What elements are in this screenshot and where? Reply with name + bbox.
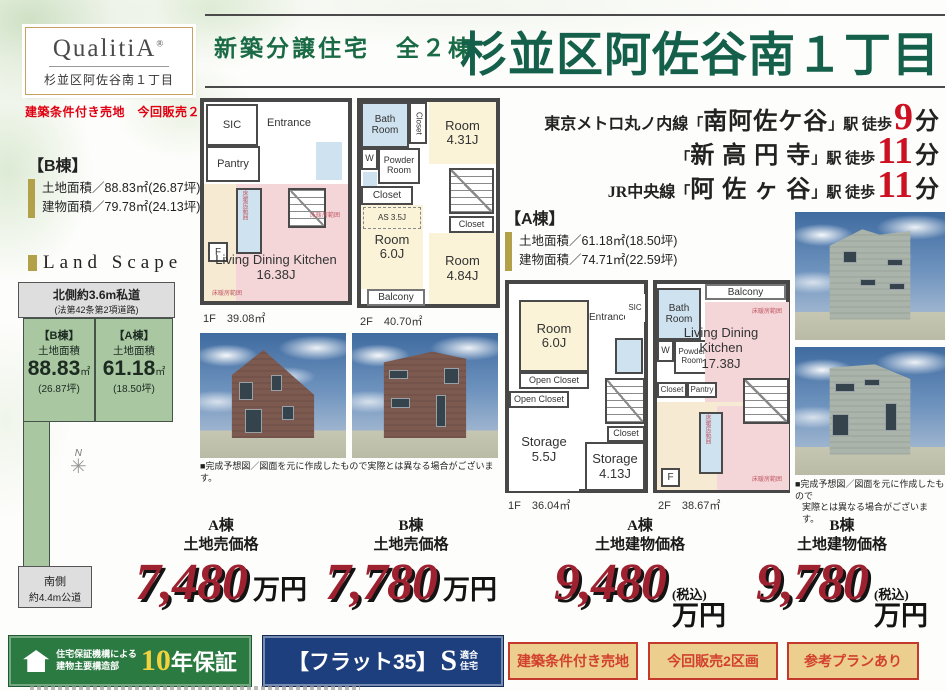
pantry: Pantry (687, 382, 717, 398)
price-b-total: B棟土地建物価格 9,780 (税込)万円 (742, 517, 942, 630)
floorplan-b-2f: Bath Room Closet Room 4.31J W Powder Roo… (357, 98, 500, 308)
ldk-label: Living Dining Kitchen 16.38J (204, 252, 348, 282)
plot-b-area: 88.83 (28, 357, 81, 380)
room-sic: SIC (206, 104, 258, 146)
tag-lots: 今回販売2区画 (648, 642, 778, 680)
flat35-badge: 【フラット35】 S 適合 住宅 (262, 635, 504, 687)
house-icon (23, 650, 49, 672)
stairs-icon (449, 168, 494, 214)
house-illustration (822, 227, 918, 319)
room-entrance: Entrance (260, 104, 318, 142)
a-1f-area: 1F 36.04㎡ (508, 497, 570, 513)
fine-print-cutoff (30, 686, 360, 690)
access-row: JR中央線「阿 佐 ヶ 谷」駅 徒歩11分 (479, 166, 939, 200)
room-60: Room 6.0J (519, 300, 589, 372)
price-value: 9,780 (756, 557, 868, 609)
a-building-area: 建物面積／74.71㎡(22.59坪) (519, 251, 677, 270)
tag-reference-plan: 参考プランあり (787, 642, 919, 680)
building-a-name: 【A棟】 (505, 205, 705, 229)
closet: Closet (607, 426, 645, 442)
landscape-heading: Land Scape (28, 252, 182, 274)
rail-line: 東京メトロ丸ノ内線 (544, 110, 688, 134)
south-road: 南側 約4.4m公道 (18, 566, 92, 608)
exterior-render-b-side (352, 333, 498, 458)
render-caption-mid: ■完成予想図／図面を元に作成したもので実際とは異なる場合がございます。 (200, 461, 500, 484)
price-a-land: A棟土地売価格 7,480 万円 (130, 517, 312, 609)
toilet-icon (615, 338, 643, 374)
plot-a-tsubo: (18.50坪) (96, 380, 172, 395)
house-illustration (226, 348, 319, 438)
room-bath: Bath Room (361, 102, 409, 148)
room-powder: Powder Room (378, 148, 420, 184)
price-value: 9,480 (554, 557, 666, 609)
plot-a-area: 61.18 (103, 357, 156, 380)
exterior-render-a-side (795, 347, 945, 475)
plot-b-flagpole (23, 421, 50, 567)
washer-box: W (657, 340, 674, 362)
room-431: Room 4.31J (429, 102, 496, 164)
station-name: 阿 佐 ヶ 谷 (690, 169, 811, 204)
sale-condition-note: 建築条件付き売地 今回販売２区画 (25, 103, 225, 120)
building-a-info: 【A棟】 土地面積／61.18㎡(18.50坪) 建物面積／74.71㎡(22.… (505, 205, 705, 271)
b-1f-area: 1F 39.08㎡ (203, 310, 265, 326)
price-a-total: A棟土地建物価格 9,480 (税込)万円 (540, 517, 740, 630)
page-title: 杉並区阿佐谷南１丁目 (460, 16, 945, 85)
stairs-icon (743, 378, 789, 424)
closet: Closet (409, 102, 427, 144)
heated-floor-label: 床暖房範囲 (240, 190, 249, 220)
house-illustration (822, 362, 918, 454)
access-row: 「新 高 円 寺」駅 徒歩11分 (479, 132, 939, 166)
exterior-render-b-front (200, 333, 346, 458)
plot-a: 【A棟】 土地面積 61.18㎡ (18.50坪) (95, 318, 173, 422)
b-land-area: 土地面積／88.83㎡(26.87坪) (42, 179, 200, 198)
station-name: 新 高 円 寺 (690, 135, 811, 170)
logo-subtitle: 杉並区阿佐谷南１丁目 (26, 71, 192, 88)
warranty-years: 10 (141, 646, 171, 676)
building-b-name: 【B棟】 (28, 152, 218, 176)
station-name: 南阿佐ケ谷 (703, 101, 828, 136)
tax-note: (税込) (874, 584, 909, 603)
plot-b: 【B棟】 土地面積 88.83㎡ (26.87坪) (23, 318, 95, 422)
compass-icon: N ✳ (70, 448, 87, 475)
ldk-label: Living Dining Kitchen 17.38J (681, 326, 761, 371)
balcony: Balcony (367, 289, 425, 306)
station-access: 東京メトロ丸ノ内線「南阿佐ケ谷」駅 徒歩9分 「新 高 円 寺」駅 徒歩11分 … (479, 98, 939, 200)
house-illustration (378, 348, 471, 438)
price-b-land: B棟土地売価格 7,780 万円 (316, 517, 506, 609)
walk-minutes: 11 (875, 166, 915, 204)
header-rule-bottom (205, 86, 945, 88)
heated-floor-label: 床暖房範囲 (212, 288, 242, 297)
a-land-area: 土地面積／61.18㎡(18.50坪) (519, 232, 677, 251)
building-b-info: 【B棟】 土地面積／88.83㎡(26.87坪) 建物面積／79.78㎡(24.… (28, 152, 218, 218)
north-road: 北側約3.6m私道 (法第42条第2項道路) (18, 282, 175, 318)
price-value: 7,480 (135, 557, 247, 609)
closet: Closet (361, 186, 413, 205)
brand-logo: QualitiA® 杉並区阿佐谷南１丁目 (25, 27, 193, 95)
stairs-icon (288, 188, 326, 228)
storage-55: Storage 5.5J (509, 408, 579, 491)
tag-sale-condition: 建築条件付き売地 (508, 642, 638, 680)
room-entrance: Entrance (589, 298, 629, 336)
washer-box: W (361, 148, 378, 170)
a-2f-area: 2F 38.67㎡ (658, 497, 720, 513)
registered-mark: ® (156, 39, 165, 49)
heated-floor-label: 床暖房範囲 (752, 306, 782, 315)
storage-413: Storage 4.13J (585, 442, 645, 491)
room-sic: SIC (625, 294, 645, 322)
b-building-area: 建物面積／79.78㎡(24.13坪) (42, 198, 200, 217)
gold-accent-bar (28, 179, 35, 218)
heated-floor-label: 床暖房範囲 (703, 414, 712, 444)
fridge-box: F (661, 468, 680, 487)
floorplan-a-1f: Room 6.0J Entrance SIC Open Closet Open … (505, 280, 648, 493)
gold-square-icon (28, 255, 37, 271)
brand-name: QualitiA (53, 35, 157, 62)
open-closet: Open Closet (519, 372, 589, 389)
access-row: 東京メトロ丸ノ内線「南阿佐ケ谷」駅 徒歩9分 (479, 98, 939, 132)
closet: Closet (657, 382, 687, 398)
tax-note: (税込) (672, 584, 707, 603)
room-pantry: Pantry (206, 146, 260, 182)
toilet-icon (316, 142, 342, 180)
balcony: Balcony (705, 284, 786, 300)
room-484: Room 4.84J (429, 233, 496, 304)
gold-accent-bar (505, 232, 512, 271)
open-closet: Open Closet (509, 391, 569, 408)
warranty-badge: 住宅保証機構による 建物主要構造部 10 年保証 (8, 635, 252, 687)
b-2f-area: 2F 40.70㎡ (360, 313, 422, 329)
floorplan-a-2f: Balcony Bath Room W Powder Room Closet P… (653, 280, 790, 493)
rail-line: JR中央線 (608, 178, 676, 202)
price-value: 7,780 (325, 557, 437, 609)
logo-divider (49, 66, 169, 67)
flyer-page: QualitiA® 杉並区阿佐谷南１丁目 建築条件付き売地 今回販売２区画 新築… (0, 0, 947, 691)
stairs-icon (605, 378, 645, 424)
plot-b-tsubo: (26.87坪) (24, 380, 94, 395)
closet: Closet (449, 216, 494, 233)
attic-storage: AS 3.5J (363, 207, 421, 229)
floorplan-b-1f: SIC Entrance Pantry F 床暖房範囲 床暖房範囲 床暖房範囲 … (200, 98, 352, 305)
heated-floor-label: 床暖房範囲 (752, 474, 782, 483)
heated-floor-label: 床暖房範囲 (310, 210, 340, 219)
exterior-render-a-front (795, 212, 945, 340)
header-lead: 新築分譲住宅 全２棟 (214, 29, 474, 63)
